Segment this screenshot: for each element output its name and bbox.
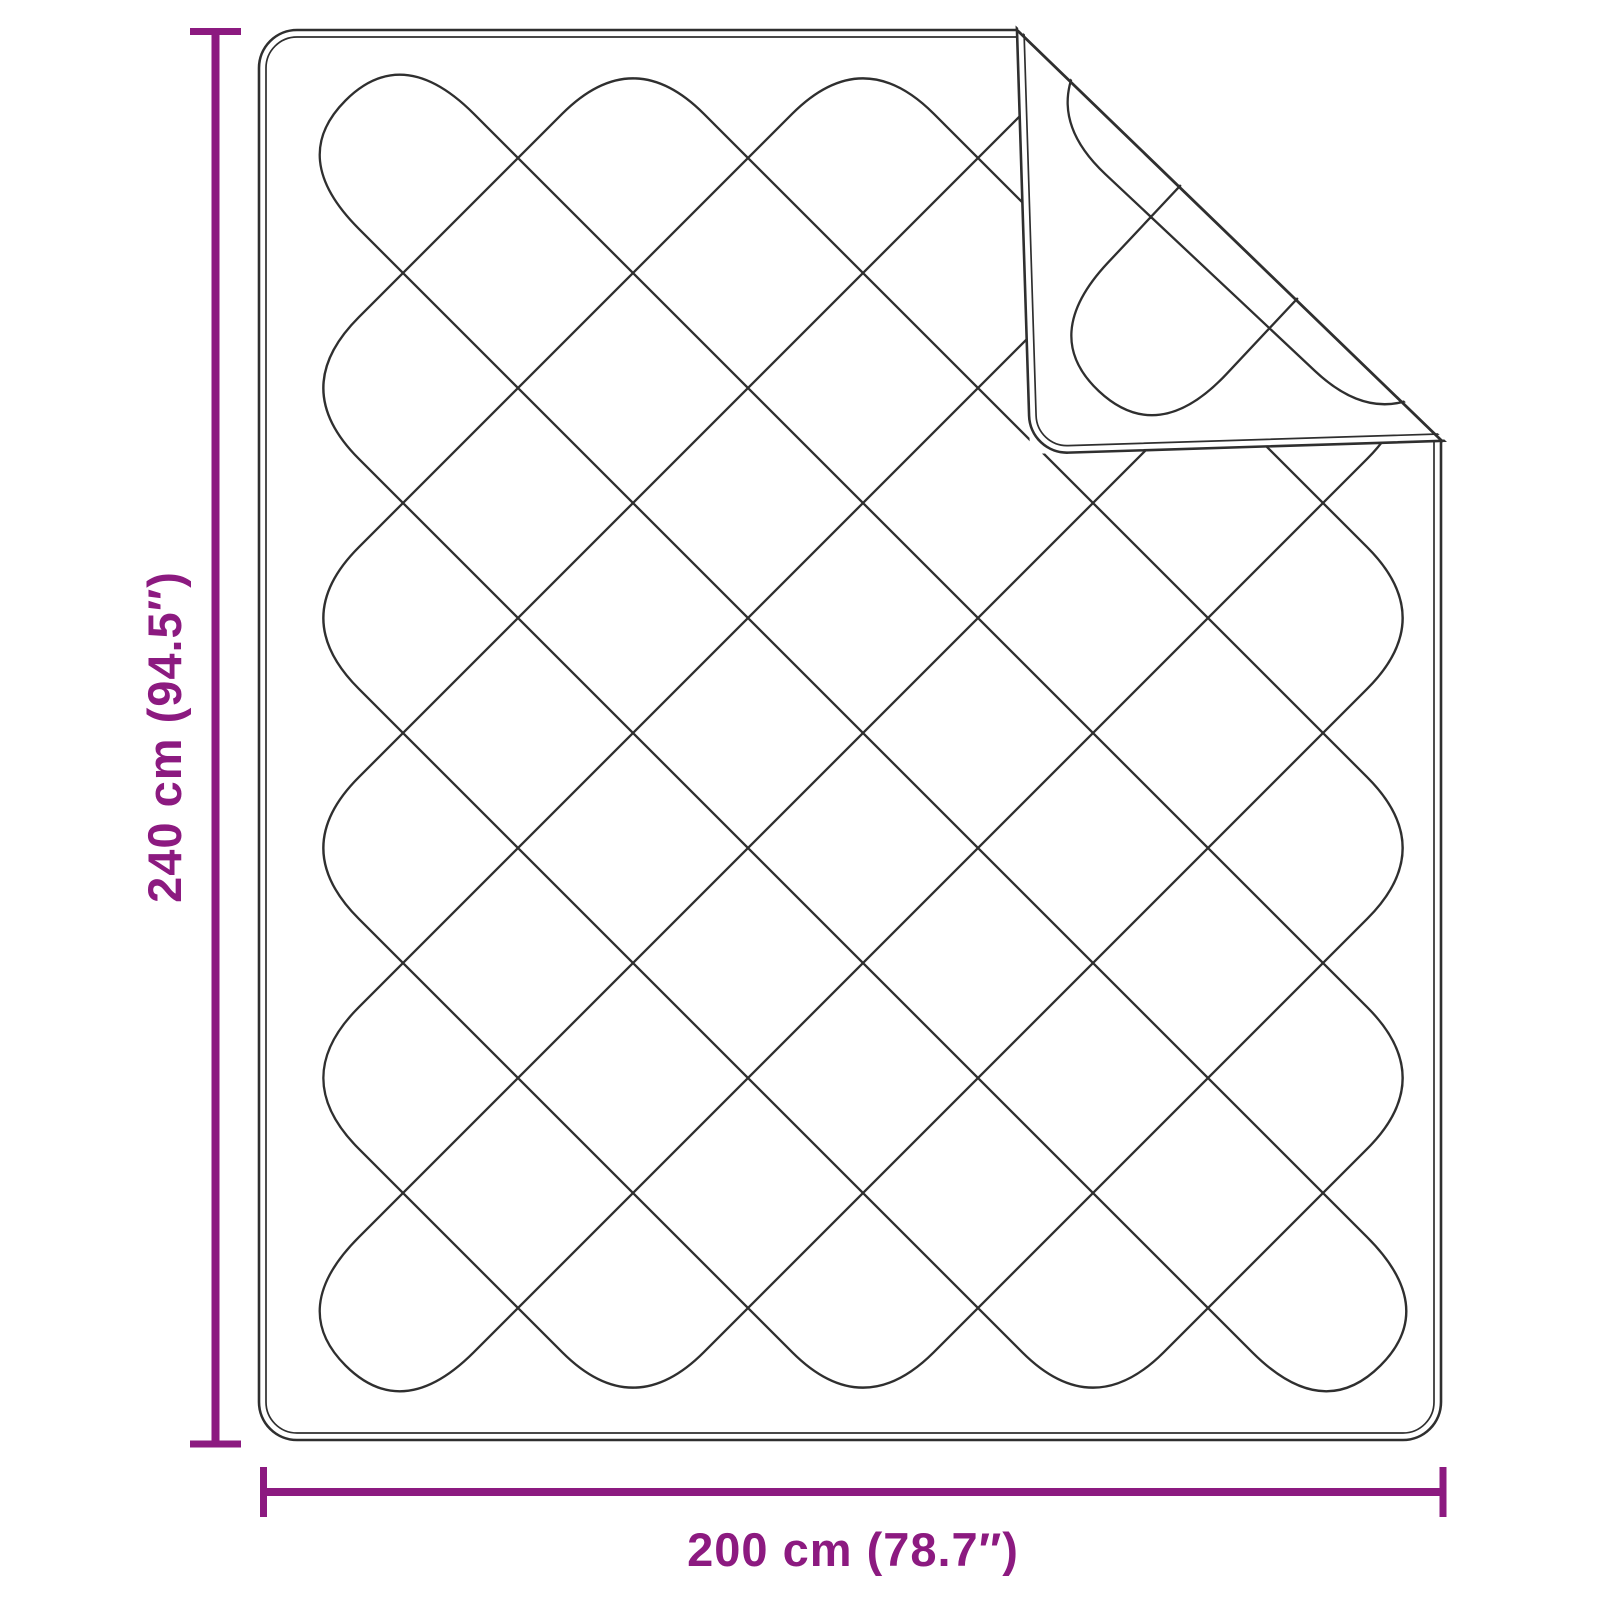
folded-corner-flap (993, 0, 1600, 454)
flap-fabric (1018, 31, 1440, 454)
height-dimension-label: 240 cm (94.5″) (138, 571, 191, 903)
width-dimension-label: 200 cm (78.7″) (687, 1523, 1019, 1576)
blanket-front-face (259, 30, 1441, 1440)
horizontal-dimension: 200 cm (78.7″) (264, 1467, 1444, 1576)
vertical-dimension: 240 cm (94.5″) (138, 32, 241, 1445)
blanket-dimension-diagram: 240 cm (94.5″) 200 cm (78.7″) (0, 0, 1600, 1600)
